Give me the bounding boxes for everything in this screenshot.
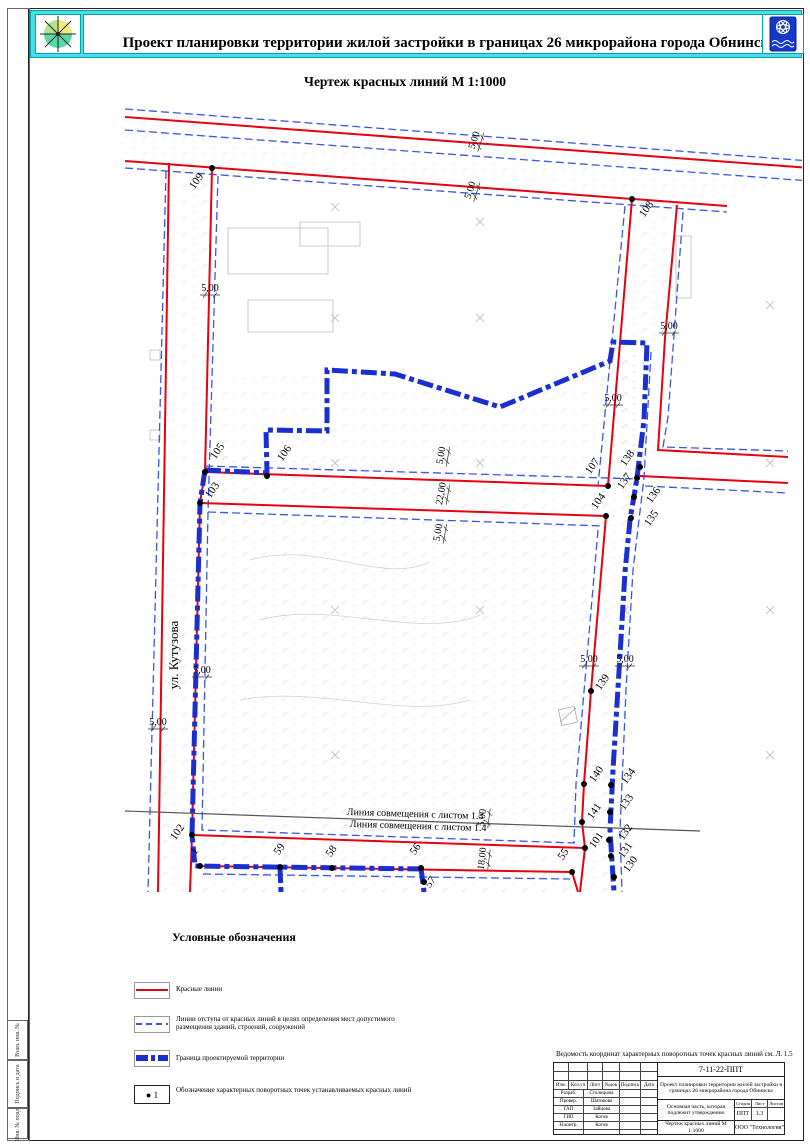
dimension-text: 5,00 bbox=[604, 393, 622, 404]
strip-cell-inv: Инв. № подл. bbox=[7, 1108, 28, 1139]
sheets-label: Листов bbox=[768, 1100, 784, 1107]
turning-point-dot bbox=[607, 809, 613, 815]
turning-point-dot bbox=[605, 483, 611, 489]
col-izm: Изм. bbox=[554, 1081, 569, 1089]
dimension: 5,00 bbox=[200, 283, 220, 298]
dimension: 5,00 bbox=[579, 654, 599, 669]
role-name: Шатикова bbox=[584, 1098, 620, 1105]
legend-title: Условные обозначения bbox=[172, 930, 296, 945]
dimension: 5,00 bbox=[148, 717, 168, 732]
legend-label: Обозначение характерных поворотных точек… bbox=[176, 1086, 426, 1094]
turning-point-dot bbox=[606, 837, 612, 843]
turning-point-dot bbox=[264, 473, 270, 479]
turning-point-dot bbox=[579, 819, 585, 825]
company-name: ООО "Технология" bbox=[735, 1121, 784, 1134]
turning-point-dot bbox=[197, 500, 203, 506]
dimension-text: 5,00 bbox=[149, 717, 167, 728]
role-label: Провер. bbox=[554, 1098, 584, 1105]
turning-point-dot bbox=[588, 688, 594, 694]
sheet-label: Лист bbox=[752, 1100, 769, 1107]
dimension: 5,00 bbox=[603, 393, 623, 408]
turning-point-dot bbox=[637, 464, 643, 470]
role-label: ГАП bbox=[554, 1106, 584, 1113]
stage-value: ППТ bbox=[735, 1108, 752, 1120]
turning-point-dot bbox=[209, 165, 215, 171]
topo-background bbox=[125, 119, 790, 892]
turning-point-dot bbox=[418, 865, 424, 871]
dimension-text: 5,00 bbox=[201, 283, 219, 294]
strip-label: Подпись и дата bbox=[15, 1064, 21, 1103]
sheet-value: 1.3 bbox=[752, 1108, 769, 1120]
turning-point-dot bbox=[629, 196, 635, 202]
dimension-text: 5,00 bbox=[616, 654, 634, 665]
turning-point-dot bbox=[628, 515, 634, 521]
street-label: ул. Кутузова bbox=[166, 621, 181, 690]
turning-point-dot bbox=[202, 469, 208, 475]
section-name: Основная часть, которая подлежит утвержд… bbox=[658, 1100, 735, 1120]
turning-point-label: 133 bbox=[617, 792, 637, 813]
strip-label: Взам. инв. № bbox=[15, 1023, 21, 1057]
legend-symbol-point: ● 1 bbox=[134, 1085, 170, 1104]
legend-label: Граница проектируемой территории bbox=[176, 1054, 284, 1062]
strip-cell-vzam: Взам. инв. № bbox=[7, 1020, 28, 1060]
col-podpis: Подпись bbox=[620, 1081, 641, 1089]
turning-point-dot bbox=[603, 513, 609, 519]
legend-symbol-boundary bbox=[134, 1050, 170, 1067]
turning-point-label: 135 bbox=[642, 508, 662, 529]
dimension-text: 5,00 bbox=[476, 808, 489, 827]
strip-cell-podpis: Подпись и дата bbox=[7, 1060, 28, 1108]
dimension-text: 5,00 bbox=[467, 130, 483, 150]
turning-point-dot bbox=[582, 845, 588, 851]
dimension-text: 5,00 bbox=[580, 654, 598, 665]
title-block: Изм. Кол.уч Лист №док Подпись Дата Разра… bbox=[553, 1062, 785, 1135]
dimension: 5,00 bbox=[192, 665, 212, 680]
dimension: 5,00 bbox=[659, 321, 679, 336]
turning-point-dot bbox=[277, 864, 283, 870]
role-label: Н.контр. bbox=[554, 1122, 584, 1129]
document-number: 7-11-22-ППТ bbox=[658, 1063, 784, 1077]
dimension-text: 5,00 bbox=[660, 321, 678, 332]
red-lines-plan: Линия совмещения с листом 1.3 Линия совм… bbox=[0, 0, 810, 950]
role-name: Котов bbox=[584, 1122, 620, 1129]
role-name: Зайцова bbox=[584, 1106, 620, 1113]
coordinates-note: Ведомость координат характерных поворотн… bbox=[556, 1050, 796, 1058]
turning-point-label: 132 bbox=[616, 822, 635, 842]
dimension: 5,00 bbox=[615, 654, 635, 669]
legend-symbol-offset-line bbox=[134, 1016, 170, 1033]
role-label: Разраб. bbox=[554, 1090, 584, 1097]
project-name: Проект планировки территории жилой застр… bbox=[658, 1077, 784, 1100]
col-koluch: Кол.уч bbox=[569, 1081, 588, 1089]
turning-point-dot bbox=[197, 863, 203, 869]
sheet-title: Чертеж красных линий М 1:1000 bbox=[658, 1121, 735, 1134]
legend-symbol-red-line bbox=[134, 982, 170, 999]
turning-point-dot bbox=[608, 853, 614, 859]
title-block-signatures: Изм. Кол.уч Лист №док Подпись Дата Разра… bbox=[554, 1063, 658, 1134]
turning-point-dot bbox=[634, 475, 640, 481]
sheets-value bbox=[768, 1108, 784, 1120]
point-marker-number: 1 bbox=[154, 1090, 159, 1100]
turning-point-dot bbox=[329, 865, 335, 871]
point-marker-dot: ● bbox=[146, 1090, 154, 1100]
role-name: Столицына bbox=[584, 1090, 620, 1097]
strip-label: Инв. № подл. bbox=[15, 1106, 21, 1140]
col-data: Дата bbox=[641, 1081, 657, 1089]
sheet: Взам. инв. № Подпись и дата Инв. № подл.… bbox=[0, 0, 810, 1147]
turning-point-dot bbox=[611, 874, 617, 880]
legend-label: Красные линии bbox=[176, 985, 222, 993]
turning-point-dot bbox=[631, 494, 637, 500]
turning-point-label: 136 bbox=[644, 485, 664, 506]
col-ndok: №док bbox=[603, 1081, 620, 1089]
turning-point-dot bbox=[569, 869, 575, 875]
role-name: Котов bbox=[584, 1114, 620, 1121]
col-list: Лист bbox=[588, 1081, 603, 1089]
role-label: ГИП bbox=[554, 1114, 584, 1121]
turning-point-dot bbox=[608, 782, 614, 788]
turning-point-dot bbox=[581, 781, 587, 787]
legend-label: Линии отступа от красных линий в целях о… bbox=[176, 1015, 426, 1031]
stage-label: Стадия bbox=[735, 1100, 752, 1107]
turning-point-dot bbox=[189, 832, 195, 838]
dimension-text: 5,00 bbox=[193, 665, 211, 676]
